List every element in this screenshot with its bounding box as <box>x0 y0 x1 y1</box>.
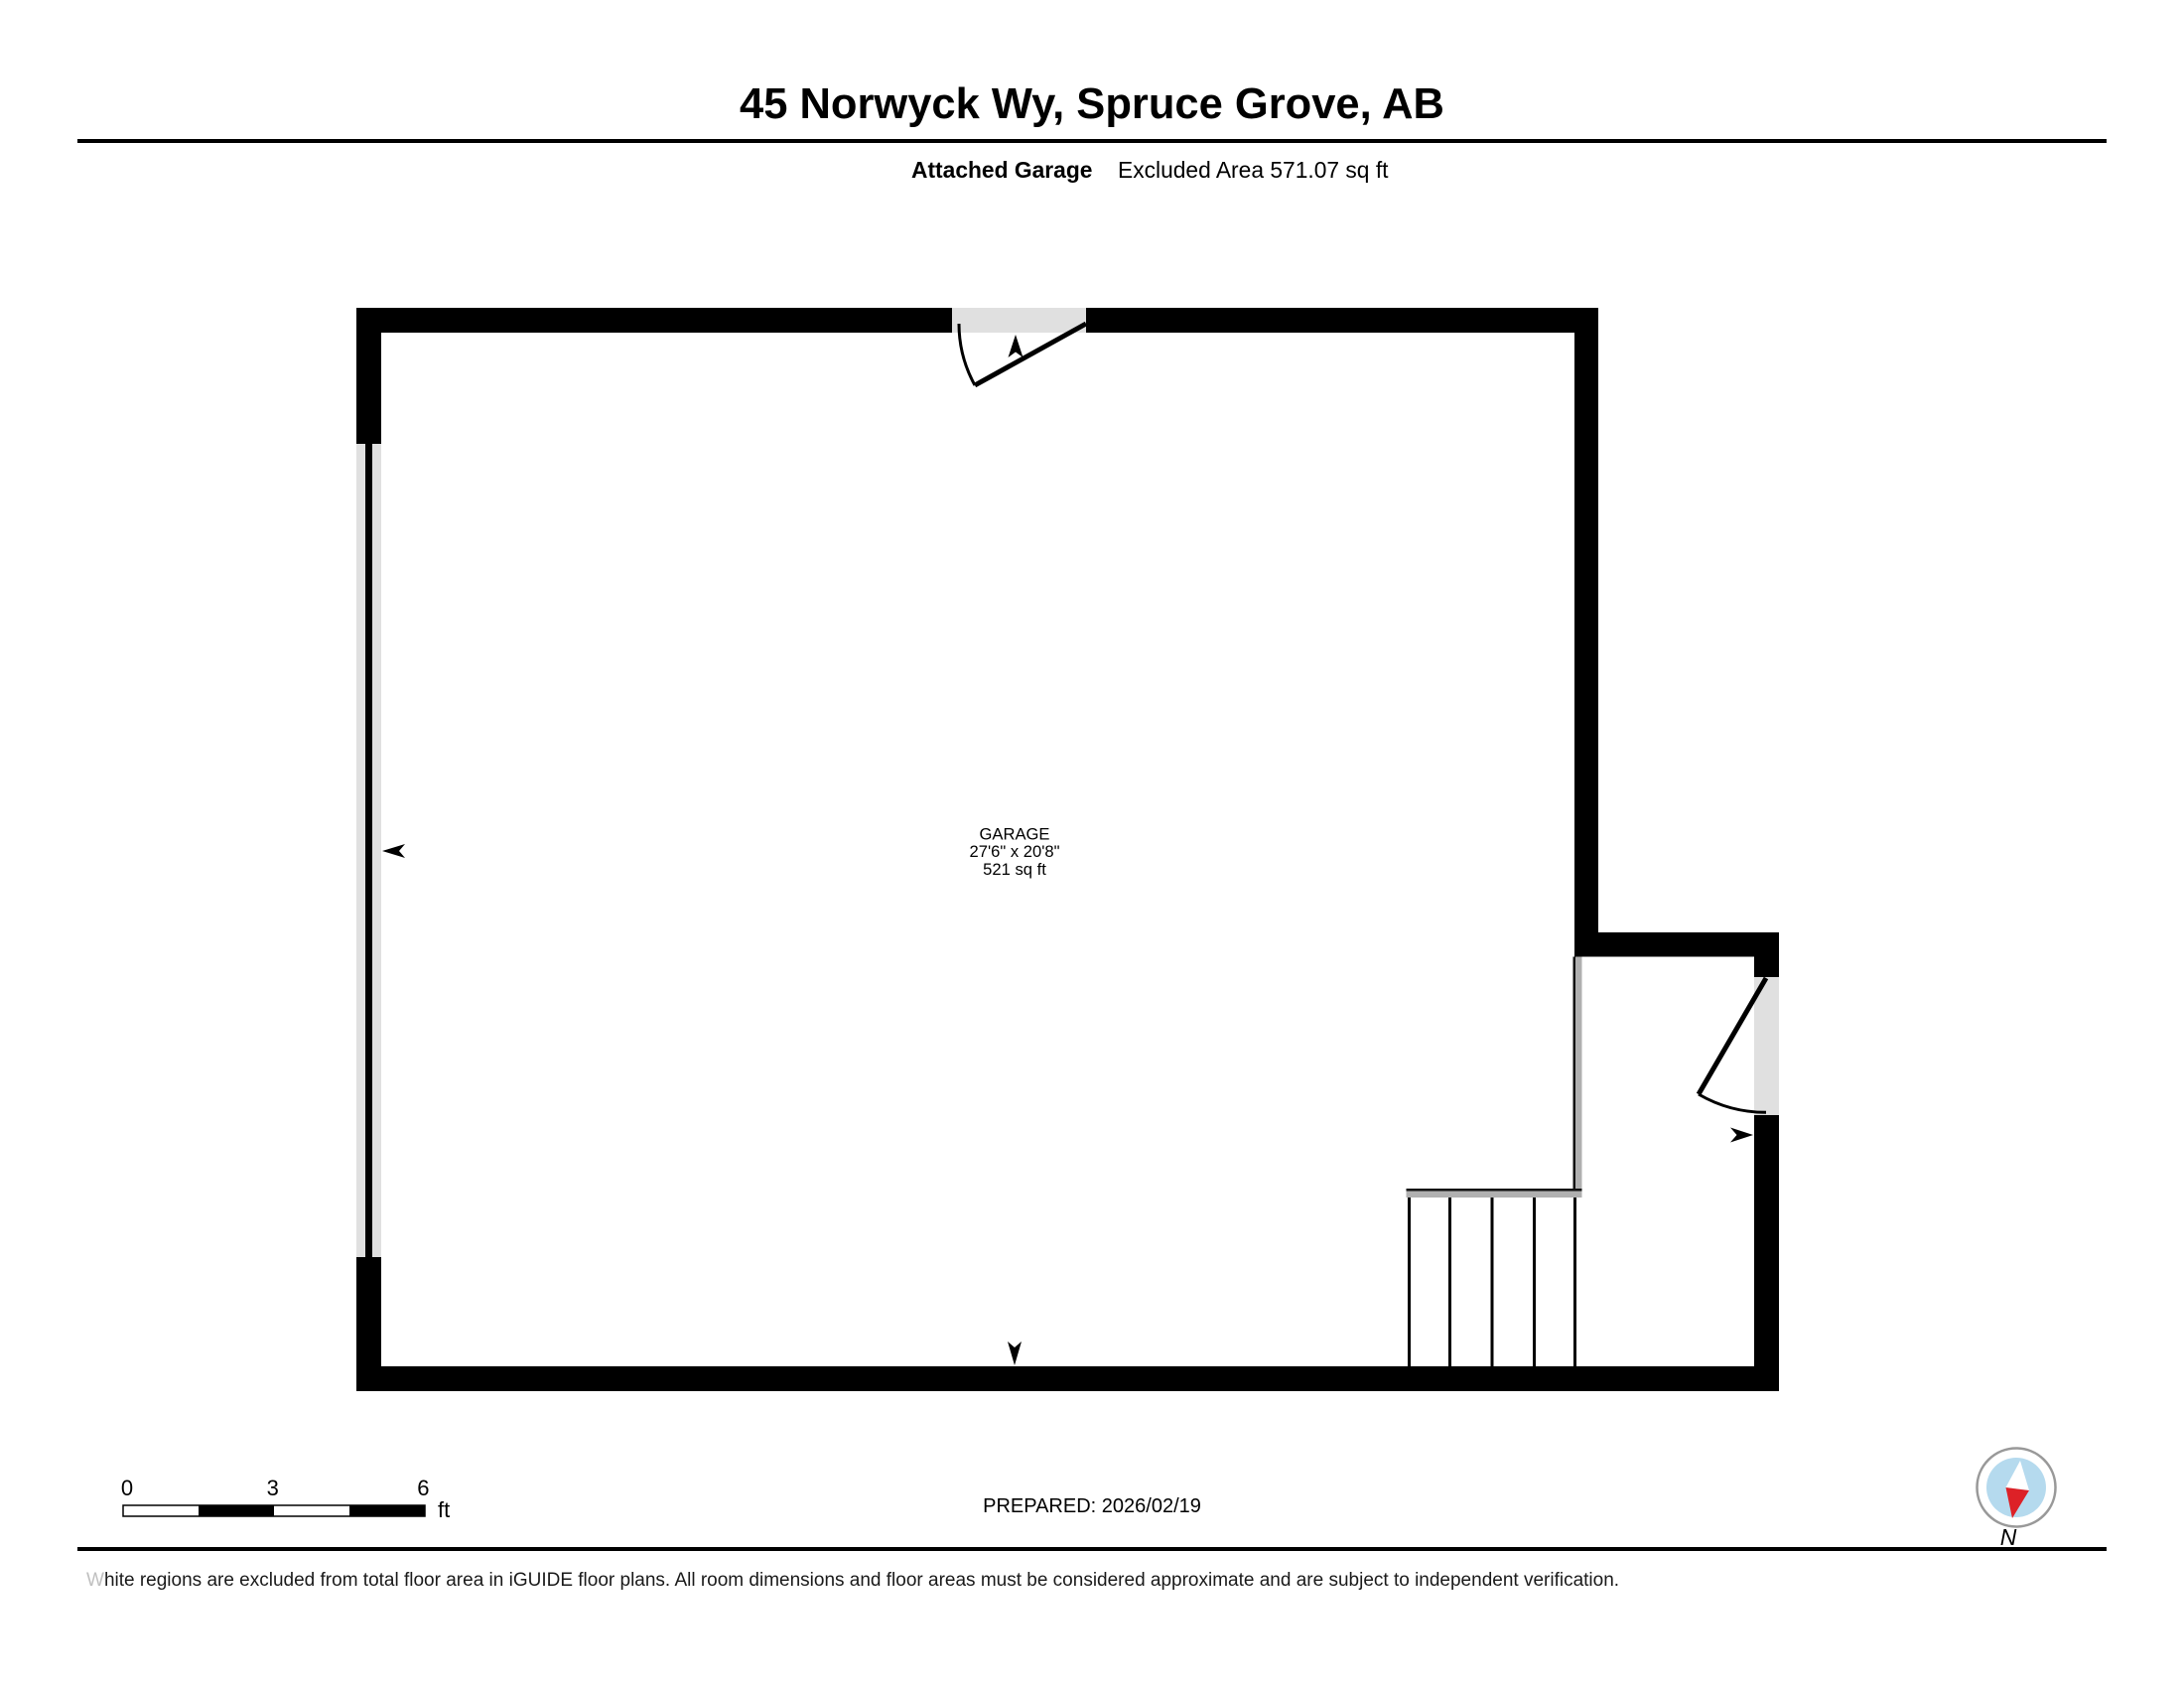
svg-text:PREPARED: 2026/02/19: PREPARED: 2026/02/19 <box>983 1495 1201 1517</box>
svg-text:Attached Garage: Attached Garage <box>911 157 1092 183</box>
svg-text:3: 3 <box>267 1476 279 1500</box>
svg-text:6: 6 <box>417 1476 429 1500</box>
svg-text:N: N <box>2000 1524 2017 1550</box>
svg-text:521 sq ft: 521 sq ft <box>983 860 1046 879</box>
svg-text:White regions are excluded fro: White regions are excluded from total fl… <box>86 1570 1619 1591</box>
svg-text:45 Norwyck Wy, Spruce Grove, A: 45 Norwyck Wy, Spruce Grove, AB <box>740 80 1444 128</box>
svg-text:27'6" x 20'8": 27'6" x 20'8" <box>969 842 1059 861</box>
svg-text:ft: ft <box>438 1497 450 1522</box>
svg-text:GARAGE: GARAGE <box>979 824 1049 843</box>
svg-text:Excluded Area 571.07 sq ft: Excluded Area 571.07 sq ft <box>1118 157 1389 183</box>
svg-text:0: 0 <box>121 1476 133 1500</box>
